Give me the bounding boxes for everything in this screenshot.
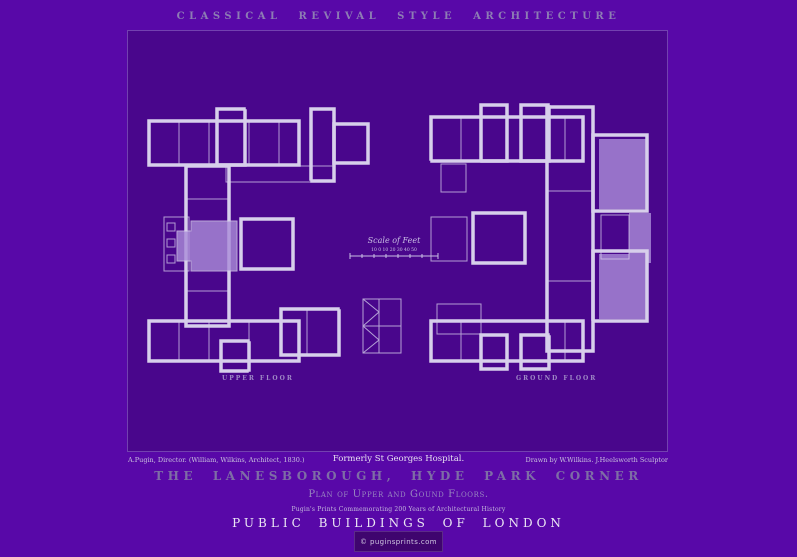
roof-plan-diagram xyxy=(359,297,405,359)
series-title-footer: PUBLIC BUILDINGS OF LONDON xyxy=(0,516,797,530)
caption-formerly: Formerly St Georges Hospital. xyxy=(0,454,797,464)
commemoration-note: Pugin's Prints Commemorating 200 Years o… xyxy=(0,506,797,513)
building-title: THE LANESBOROUGH, HYDE PARK CORNER xyxy=(0,469,797,483)
ground-floor-plan-drawing xyxy=(425,91,653,373)
scale-label: Scale of Feet xyxy=(368,236,421,245)
scale-numbers: 10 0 10 20 30 40 50 xyxy=(371,247,417,253)
floor-label-upper: UPPER FLOOR xyxy=(222,375,294,382)
poster-background: CLASSICAL REVIVAL STYLE ARCHITECTURE xyxy=(0,0,797,557)
caption-engraver: Drawn by W.Wilkins. J.Heelsworth Sculpto… xyxy=(526,456,668,464)
credit-badge: © puginsprints.com xyxy=(354,531,443,552)
upper-floor-plan-drawing xyxy=(133,95,379,373)
plan-subtitle: Plan of Upper and Gound Floors. xyxy=(0,489,797,500)
header-series-title: CLASSICAL REVIVAL STYLE ARCHITECTURE xyxy=(0,11,797,22)
credit-text: © puginsprints.com xyxy=(360,538,437,546)
scale-bar: Scale of Feet 10 0 10 20 30 40 50 xyxy=(346,235,442,265)
floor-label-ground: GROUND FLOOR xyxy=(516,375,597,382)
drawing-panel: Scale of Feet 10 0 10 20 30 40 50 xyxy=(127,30,668,452)
